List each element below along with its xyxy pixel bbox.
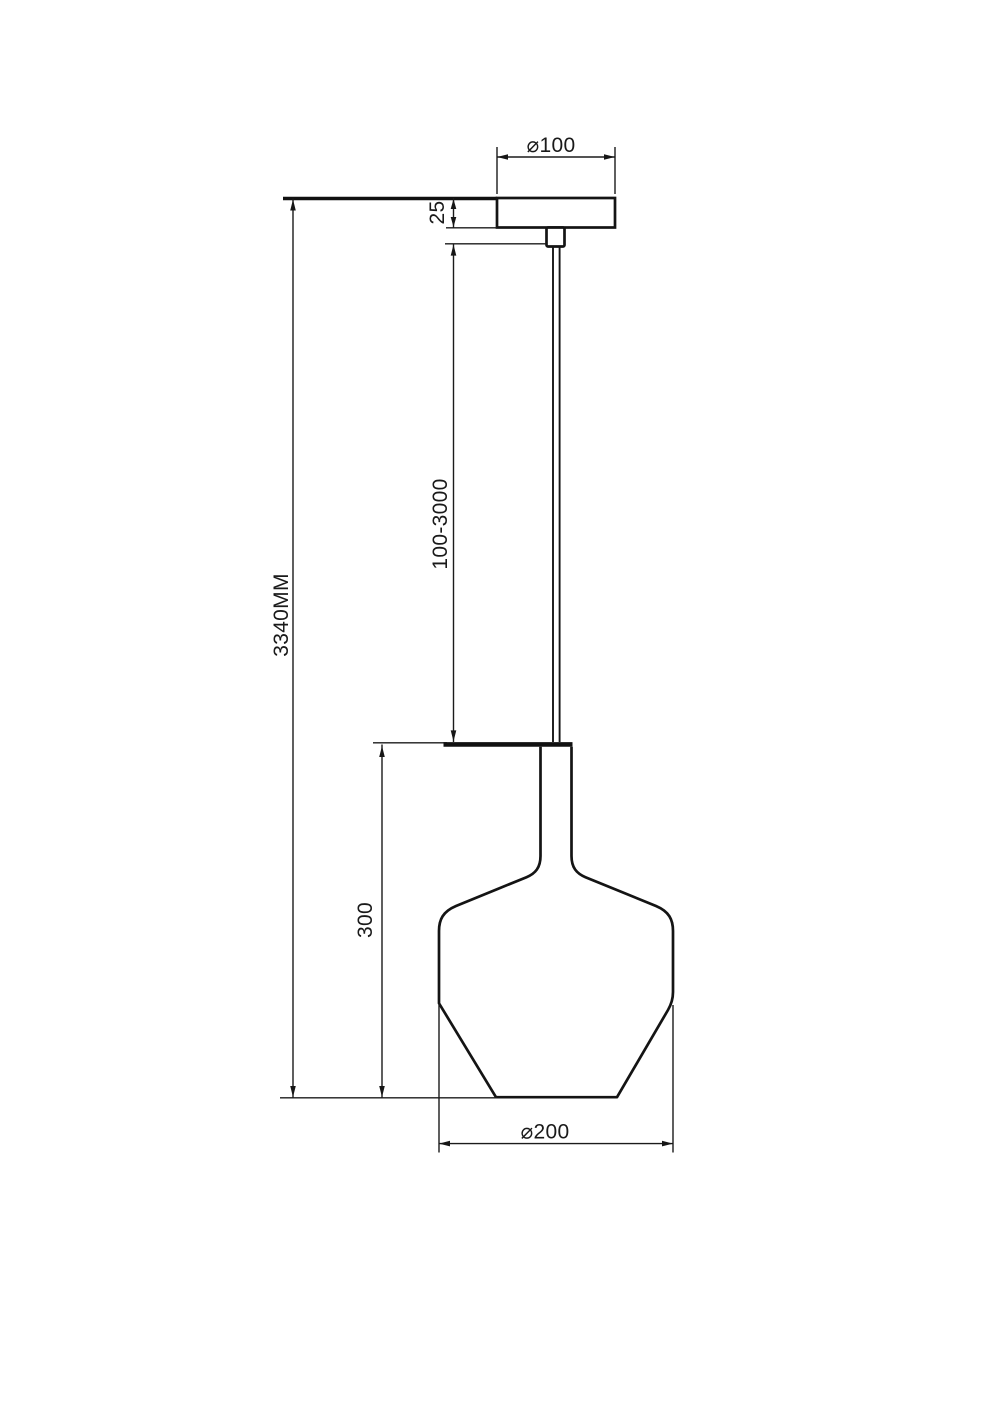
cord-connector xyxy=(547,228,565,247)
shade-outline xyxy=(439,747,673,1097)
pendant-lamp-dimension-drawing: ⌀100 25 100-3000 3340MM 300 ⌀200 xyxy=(0,0,992,1403)
arrowhead-up xyxy=(290,200,296,211)
arrowhead-down xyxy=(379,1086,385,1097)
dimension-label: 100-3000 xyxy=(429,478,452,569)
arrowhead-right xyxy=(662,1141,673,1147)
dimension-label: ⌀100 xyxy=(527,134,576,157)
canopy-outline xyxy=(497,198,615,228)
arrowhead-up xyxy=(379,746,385,757)
arrowhead-up xyxy=(451,245,457,256)
total-height-dimension: 3340MM xyxy=(270,199,296,1098)
arrowhead-right xyxy=(604,154,615,160)
suspension-length-dimension: 100-3000 xyxy=(429,244,546,742)
dimension-label: ⌀200 xyxy=(521,1121,570,1144)
dimension-label: 300 xyxy=(354,902,377,938)
arrowhead-down xyxy=(290,1086,296,1097)
canopy xyxy=(497,198,615,228)
arrowhead-left xyxy=(439,1141,450,1147)
lamp-shade xyxy=(373,743,673,1097)
suspension-cable xyxy=(553,247,560,743)
drawing-canvas: ⌀100 25 100-3000 3340MM 300 ⌀200 xyxy=(0,0,992,1403)
shade-diameter-dimension: ⌀200 xyxy=(439,1005,673,1153)
dimension-label: 3340MM xyxy=(270,573,293,657)
arrowhead-down xyxy=(451,217,457,227)
arrowhead-down xyxy=(451,730,457,741)
connector-outline xyxy=(547,228,565,247)
arrowhead-left xyxy=(497,154,508,160)
canopy-height-dimension: 25 xyxy=(426,198,497,228)
dimension-label: 25 xyxy=(426,201,449,225)
arrowhead-up xyxy=(451,199,457,209)
canopy-diameter-dimension: ⌀100 xyxy=(497,134,615,194)
shade-height-dimension: 300 xyxy=(354,745,385,1098)
